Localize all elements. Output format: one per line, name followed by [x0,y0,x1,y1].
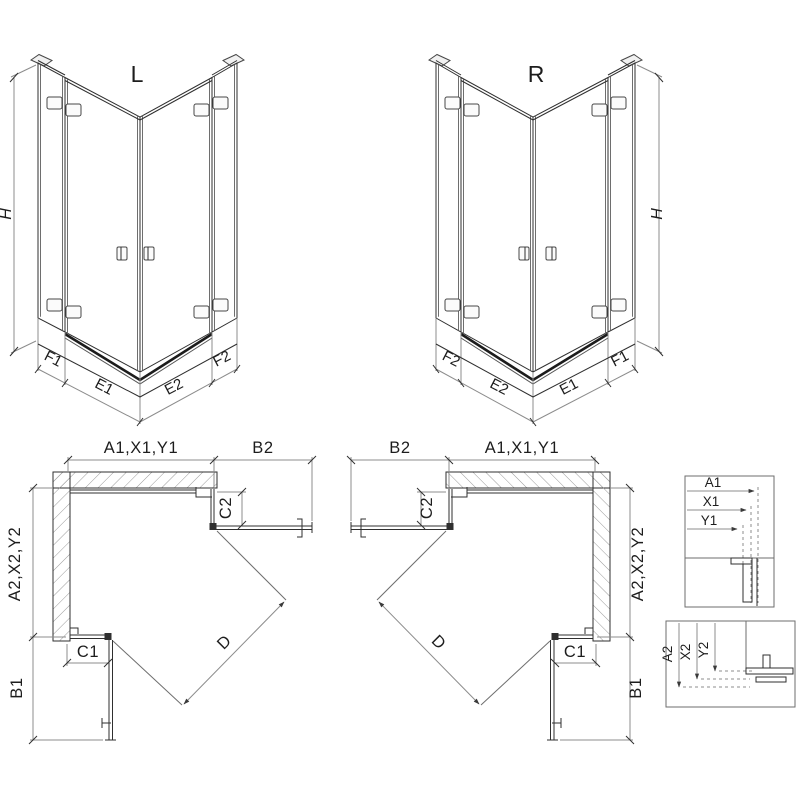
drawing-page: L H F1 E1 E2 F2 R H F2 E2 E1 F1 A1,X1,Y1… [0,0,800,800]
plan-left-width-label: A1,X1,Y1 [104,439,179,457]
plan-left-b2-label: B2 [252,439,273,457]
detail-a1-label: A1 [705,475,722,490]
iso-view-right [429,55,663,427]
technical-drawing-canvas: L H F1 E1 E2 F2 R H F2 E2 E1 F1 A1,X1,Y1… [0,0,800,800]
iso-right-e1-label: E1 [557,375,581,399]
iso-left-f2-label: F2 [210,347,233,370]
detail-view-horizontal [685,476,774,607]
detail-view-vertical [666,621,795,707]
iso-left-height-label: H [0,208,15,220]
plan-left-depth-label: A2,X2,Y2 [6,527,24,602]
plan-right-c1-label: C1 [564,643,586,661]
wall-profile-section-v [746,655,793,682]
plan-view-right [347,456,634,744]
plan-view-left [29,456,316,744]
detail-y1-label: Y1 [701,513,718,528]
iso-left-e1-label: E1 [92,375,116,399]
plan-left-d-label: D [214,632,236,654]
plan-left-b1-label: B1 [8,677,26,698]
plan-right-d-label: D [428,632,450,654]
iso-left-title: L [131,61,144,87]
iso-view-left [10,55,244,427]
detail-x2-label: X2 [678,644,693,661]
iso-right-title: R [528,61,545,87]
iso-right-e2-label: E2 [487,375,511,399]
iso-right-f2-label: F2 [439,347,462,370]
plan-right-width-label: A1,X1,Y1 [485,439,560,457]
plan-left-c2-label: C2 [217,497,235,519]
detail-x1-label: X1 [703,494,720,509]
wall-profile-section-h [731,558,757,606]
plan-right-c2-label: C2 [418,497,436,519]
plan-right-depth-label: A2,X2,Y2 [629,527,647,602]
detail-y2-label: Y2 [696,642,711,659]
plan-left-c1-label: C1 [77,643,99,661]
plan-right-b1-label: B1 [627,677,645,698]
plan-right-b2-label: B2 [389,439,410,457]
iso-right-f1-label: F1 [608,347,631,370]
detail-a2-label: A2 [660,646,675,663]
iso-right-height-label: H [649,208,666,220]
iso-left-e2-label: E2 [162,375,186,399]
iso-left-f1-label: F1 [41,347,64,370]
